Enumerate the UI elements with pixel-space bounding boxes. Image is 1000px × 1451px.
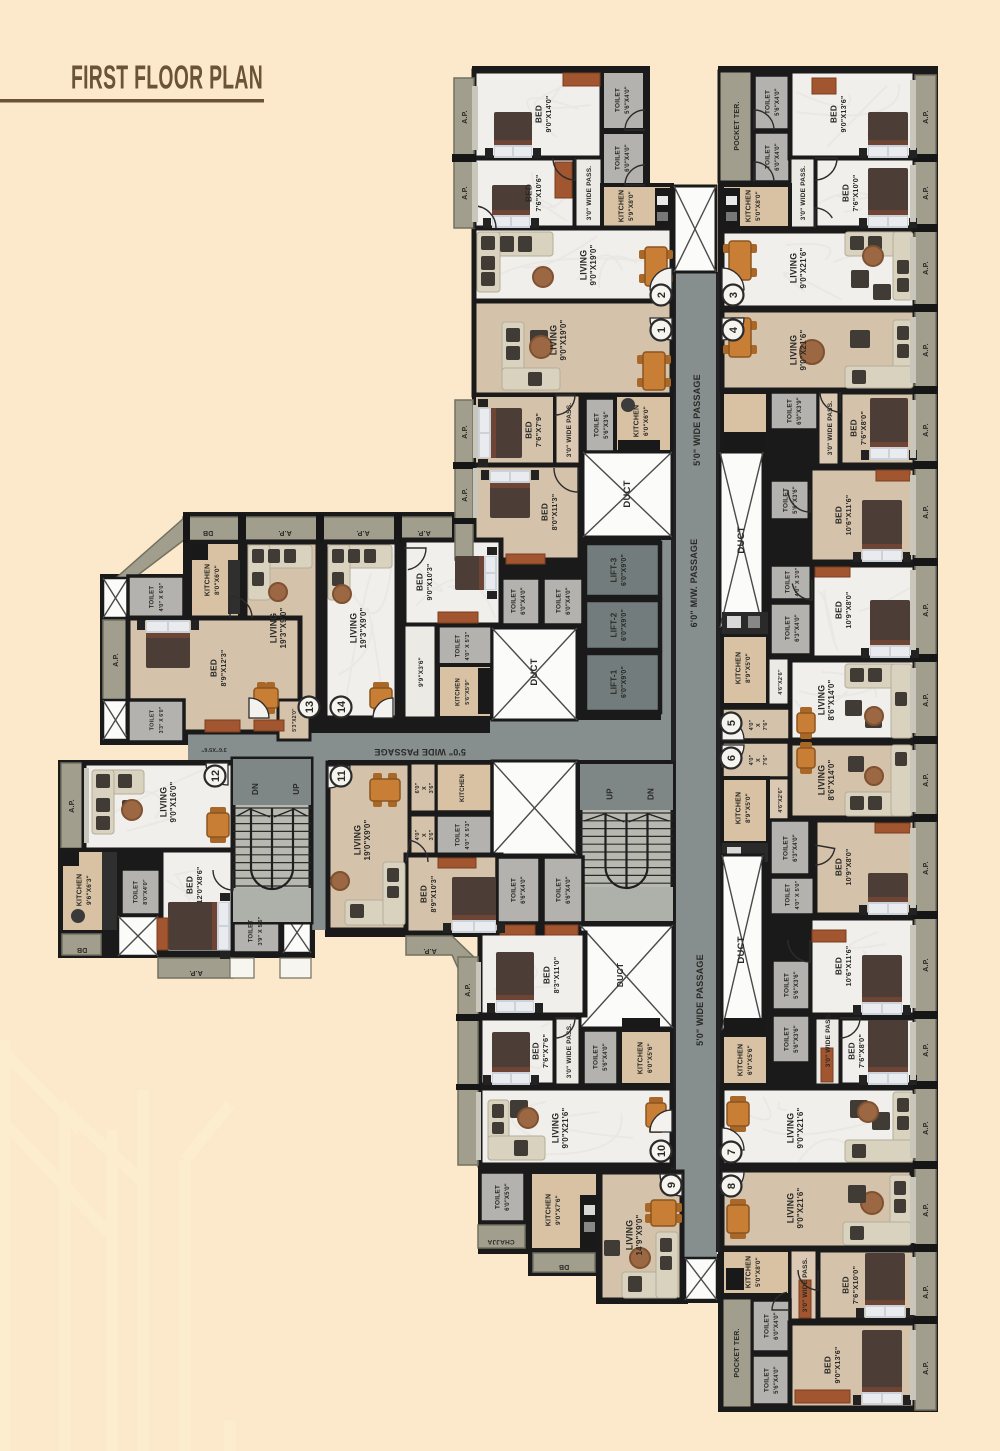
- svg-text:3'0" WIDE PASS.: 3'0" WIDE PASS.: [566, 1024, 573, 1078]
- svg-text:5'6"X4'0": 5'6"X4'0": [625, 86, 631, 114]
- svg-text:TOILET: TOILET: [592, 1045, 599, 1069]
- svg-text:TOILET: TOILET: [149, 586, 155, 609]
- svg-text:FIRST FLOOR PLAN: FIRST FLOOR PLAN: [71, 59, 263, 96]
- svg-text:POCKET TER.: POCKET TER.: [734, 101, 741, 150]
- svg-text:11: 11: [336, 770, 348, 782]
- svg-text:A.P.: A.P.: [356, 529, 370, 536]
- svg-text:UP: UP: [292, 783, 301, 795]
- svg-text:10'9"X8'0": 10'9"X8'0": [844, 848, 853, 885]
- svg-text:A.P.: A.P.: [923, 423, 930, 437]
- svg-text:BED: BED: [415, 573, 424, 591]
- svg-text:LIVING: LIVING: [268, 613, 278, 644]
- svg-text:5'6"X4'0": 5'6"X4'0": [603, 1043, 609, 1071]
- svg-text:6'0": 6'0": [415, 782, 421, 793]
- svg-text:DUCT: DUCT: [529, 658, 540, 685]
- svg-text:LIVING: LIVING: [785, 1113, 795, 1144]
- svg-text:BED: BED: [841, 1276, 850, 1294]
- svg-text:A.P.: A.P.: [923, 1121, 930, 1135]
- svg-text:7'6"X7'6": 7'6"X7'6": [541, 1034, 550, 1068]
- svg-text:BED: BED: [834, 601, 843, 619]
- svg-text:7'6"X7'9": 7'6"X7'9": [534, 413, 543, 447]
- svg-text:6'0"X4'0": 6'0"X4'0": [774, 1312, 780, 1340]
- svg-text:X: X: [756, 758, 762, 762]
- svg-text:TOILET: TOILET: [149, 709, 155, 730]
- svg-text:8'0"X4'0": 8'0"X4'0": [143, 879, 149, 905]
- svg-text:8'6"X14'0": 8'6"X14'0": [827, 680, 836, 721]
- svg-text:3'9" X 5'6": 3'9" X 5'6": [258, 916, 264, 945]
- svg-text:6'6"X4'0": 6'6"X4'0": [566, 876, 572, 904]
- svg-text:7'6": 7'6": [763, 754, 769, 765]
- svg-text:6'0"X4'0": 6'0"X4'0": [775, 143, 781, 171]
- svg-text:9: 9: [666, 1182, 678, 1188]
- svg-text:6'6"X4'0": 6'6"X4'0": [521, 876, 527, 904]
- svg-text:BED: BED: [834, 957, 843, 975]
- svg-text:LIVING: LIVING: [624, 1220, 634, 1251]
- svg-text:KITCHEN: KITCHEN: [737, 1044, 744, 1077]
- svg-text:LIVING: LIVING: [785, 1193, 795, 1224]
- svg-text:LIVING: LIVING: [788, 335, 798, 366]
- svg-text:BED: BED: [841, 184, 850, 202]
- svg-text:A.P.: A.P.: [923, 186, 930, 200]
- svg-text:A.P.: A.P.: [465, 983, 472, 997]
- svg-text:3'0" WIDE PASS.: 3'0" WIDE PASS.: [827, 401, 834, 455]
- svg-text:TOILET: TOILET: [494, 1185, 501, 1209]
- svg-text:KITCHEN: KITCHEN: [76, 874, 83, 907]
- svg-text:5'6"X3'6": 5'6"X3'6": [604, 411, 610, 439]
- svg-text:6'0"X9'0": 6'0"X9'0": [621, 666, 628, 698]
- svg-text:5'0" WIDE PASSAGE: 5'0" WIDE PASSAGE: [374, 747, 466, 757]
- svg-text:7'6": 7'6": [763, 719, 769, 730]
- svg-text:BED: BED: [209, 659, 218, 677]
- svg-text:TOILET: TOILET: [593, 413, 600, 437]
- svg-text:6'0"X3'9": 6'0"X3'9": [797, 397, 803, 425]
- svg-text:BED: BED: [829, 105, 838, 123]
- svg-text:A.P.: A.P.: [189, 969, 203, 976]
- svg-text:5'6"X3'6": 5'6"X3'6": [794, 1025, 800, 1053]
- svg-text:A.P.: A.P.: [923, 693, 930, 707]
- svg-text:5'0" WIDE PASSAGE: 5'0" WIDE PASSAGE: [695, 954, 705, 1046]
- svg-text:8'0"X6'0": 8'0"X6'0": [214, 565, 221, 595]
- svg-text:TOILET: TOILET: [614, 146, 621, 170]
- svg-text:4: 4: [728, 326, 740, 333]
- svg-text:5'0" WIDE PASSAGE: 5'0" WIDE PASSAGE: [692, 374, 702, 466]
- svg-text:A.P.: A.P.: [417, 529, 431, 536]
- svg-text:TOILET: TOILET: [133, 881, 139, 904]
- svg-text:A.P.: A.P.: [923, 343, 930, 357]
- svg-text:3'3" X 6'0": 3'3" X 6'0": [159, 706, 165, 733]
- svg-text:A.P.: A.P.: [923, 505, 930, 519]
- svg-text:KITCHEN: KITCHEN: [460, 774, 466, 802]
- svg-text:LIFT-1: LIFT-1: [609, 669, 618, 694]
- svg-text:A.P.: A.P.: [923, 773, 930, 787]
- svg-text:TOILET: TOILET: [614, 88, 621, 112]
- svg-text:KITCHEN: KITCHEN: [455, 678, 461, 706]
- svg-text:19'0"X9'0": 19'0"X9'0": [363, 820, 372, 861]
- svg-text:12'0"X8'6": 12'0"X8'6": [195, 866, 204, 903]
- svg-text:4'0" X 5'0": 4'0" X 5'0": [795, 880, 801, 909]
- svg-text:3'0" WIDE PASS.: 3'0" WIDE PASS.: [800, 166, 807, 220]
- svg-text:BED: BED: [524, 421, 533, 439]
- svg-text:4'0" X 5'3": 4'0" X 5'3": [465, 820, 471, 849]
- svg-text:6'0"X4'0": 6'0"X4'0": [566, 587, 572, 615]
- svg-text:A.P.: A.P.: [923, 1361, 930, 1375]
- svg-text:8'6"X14'0": 8'6"X14'0": [827, 760, 836, 801]
- svg-text:A.P.: A.P.: [923, 603, 930, 617]
- svg-text:TOILET: TOILET: [510, 878, 517, 902]
- svg-text:6'0"X9'0": 6'0"X9'0": [621, 554, 628, 586]
- svg-text:A.P.: A.P.: [423, 947, 437, 954]
- svg-text:CHAJJA: CHAJJA: [487, 1238, 514, 1245]
- svg-text:TOILET: TOILET: [782, 836, 789, 860]
- svg-text:10'9"X8'0": 10'9"X8'0": [844, 591, 853, 628]
- svg-text:9'0"X21'6": 9'0"X21'6": [796, 1188, 805, 1229]
- svg-text:TOILET: TOILET: [248, 920, 254, 943]
- svg-text:4'0" X 5'3": 4'0" X 5'3": [465, 631, 471, 660]
- svg-text:DN: DN: [647, 788, 656, 800]
- svg-text:3'6": 3'6": [429, 829, 435, 840]
- svg-text:DUCT: DUCT: [615, 962, 625, 987]
- svg-text:BED: BED: [534, 105, 543, 123]
- svg-text:9'0"X21'6": 9'0"X21'6": [796, 1108, 805, 1149]
- svg-text:8'9"X12'3": 8'9"X12'3": [219, 649, 228, 686]
- svg-text:6'3"X4'0": 6'3"X4'0": [795, 614, 801, 642]
- svg-text:9'0"X7'6": 9'0"X7'6": [555, 1195, 562, 1225]
- svg-text:9'0"X10'3": 9'0"X10'3": [425, 563, 434, 600]
- svg-text:4'0" X 3'0": 4'0" X 3'0": [795, 567, 801, 596]
- svg-text:12: 12: [210, 770, 222, 782]
- svg-text:TOILET: TOILET: [785, 571, 791, 594]
- svg-text:5'6"X4'0": 5'6"X4'0": [775, 88, 781, 116]
- svg-text:4'6"X2'6": 4'6"X2'6": [778, 669, 784, 695]
- svg-text:BED: BED: [524, 184, 533, 202]
- svg-text:LIVING: LIVING: [548, 325, 558, 356]
- svg-text:LIVING: LIVING: [550, 1113, 560, 1144]
- svg-text:KITCHEN: KITCHEN: [637, 1042, 644, 1075]
- svg-text:A.P.: A.P.: [923, 110, 930, 124]
- svg-text:TOILET: TOILET: [786, 399, 793, 423]
- svg-text:A.P.: A.P.: [923, 261, 930, 275]
- svg-text:BED: BED: [823, 1356, 832, 1374]
- svg-text:7'6"X8'0": 7'6"X8'0": [859, 411, 868, 445]
- svg-text:3'6": 3'6": [429, 782, 435, 793]
- svg-text:A.P.: A.P.: [462, 488, 469, 502]
- svg-text:4'0": 4'0": [749, 719, 755, 730]
- svg-text:5'6"X4'0": 5'6"X4'0": [774, 1366, 780, 1394]
- svg-text:KITCHEN: KITCHEN: [618, 190, 625, 223]
- svg-text:TOILET: TOILET: [784, 616, 791, 640]
- svg-text:6'0"X5'6": 6'0"X5'6": [647, 1043, 654, 1073]
- svg-text:6'3"X4'0": 6'3"X4'0": [793, 834, 799, 862]
- svg-text:19'3"X9'0": 19'3"X9'0": [359, 608, 368, 649]
- svg-text:DN: DN: [251, 783, 260, 795]
- svg-text:9'0"X21'6": 9'0"X21'6": [561, 1108, 570, 1149]
- svg-text:TOILET: TOILET: [763, 1314, 770, 1338]
- svg-text:9'0"X13'6": 9'0"X13'6": [833, 1346, 842, 1383]
- svg-text:6'0"X4'0": 6'0"X4'0": [521, 587, 527, 615]
- svg-text:3'0" WIDE PASS.: 3'0" WIDE PASS.: [586, 166, 593, 220]
- svg-text:DUCT: DUCT: [736, 526, 747, 553]
- svg-text:TOILET: TOILET: [555, 878, 562, 902]
- svg-text:BED: BED: [531, 1042, 540, 1060]
- svg-text:3'0" WIDE PASS.: 3'0" WIDE PASS.: [802, 1258, 809, 1312]
- svg-text:8'3"X11'0": 8'3"X11'0": [552, 957, 561, 994]
- svg-text:TOILET: TOILET: [764, 90, 771, 114]
- svg-text:DUCT: DUCT: [736, 936, 747, 963]
- svg-text:9'0"X16'0": 9'0"X16'0": [169, 782, 178, 823]
- svg-text:BED: BED: [540, 503, 549, 521]
- svg-text:4'0" X 6'0": 4'0" X 6'0": [159, 582, 165, 611]
- svg-text:X: X: [422, 833, 428, 837]
- svg-text:POCKET TER.: POCKET TER.: [734, 1328, 741, 1377]
- svg-text:A.P.: A.P.: [462, 425, 469, 439]
- svg-text:LIVING: LIVING: [578, 250, 588, 281]
- svg-text:A.P.: A.P.: [69, 799, 76, 813]
- svg-text:BED: BED: [834, 506, 843, 524]
- svg-text:4'6"X2'6": 4'6"X2'6": [778, 787, 784, 813]
- svg-text:7'6"X10'6": 7'6"X10'6": [534, 174, 543, 211]
- svg-text:BED: BED: [542, 966, 551, 984]
- svg-text:LIFT-2: LIFT-2: [609, 612, 618, 637]
- svg-text:TOILET: TOILET: [510, 589, 517, 613]
- svg-text:A.P.: A.P.: [923, 958, 930, 972]
- svg-text:TOILET: TOILET: [785, 884, 791, 907]
- svg-text:3'0" WIDE PASS.: 3'0" WIDE PASS.: [825, 1013, 832, 1067]
- svg-text:7: 7: [726, 1149, 738, 1155]
- svg-text:6'0"X9'0": 6'0"X9'0": [621, 609, 628, 641]
- svg-text:DB: DB: [203, 529, 214, 536]
- svg-text:6: 6: [726, 755, 738, 761]
- svg-text:KITCHEN: KITCHEN: [735, 652, 742, 685]
- svg-text:10'6"X11'6": 10'6"X11'6": [844, 495, 853, 536]
- svg-text:10: 10: [656, 1145, 668, 1157]
- svg-text:A.P.: A.P.: [462, 186, 469, 200]
- svg-text:7'6"X8'0": 7'6"X8'0": [857, 1034, 866, 1068]
- svg-text:DUCT: DUCT: [622, 480, 633, 507]
- svg-text:A.P.: A.P.: [923, 1285, 930, 1299]
- svg-text:A.P.: A.P.: [923, 861, 930, 875]
- svg-text:6'0"X6'0": 6'0"X6'0": [643, 406, 650, 436]
- svg-text:3'0" WIDE PASS.: 3'0" WIDE PASS.: [566, 403, 573, 457]
- svg-text:LIFT-3: LIFT-3: [609, 557, 618, 582]
- svg-text:KITCHEN: KITCHEN: [633, 405, 640, 438]
- svg-text:5'6"X3'6": 5'6"X3'6": [793, 486, 799, 514]
- svg-text:5'9"X8'0": 5'9"X8'0": [628, 191, 635, 221]
- svg-text:5'0"X8'0": 5'0"X8'0": [755, 1257, 762, 1287]
- svg-text:5'6"X3'6": 5'6"X3'6": [794, 971, 800, 999]
- svg-text:TOILET: TOILET: [782, 488, 789, 512]
- svg-text:10'6"X11'6": 10'6"X11'6": [844, 946, 853, 987]
- svg-text:A.P.: A.P.: [113, 653, 120, 667]
- svg-text:8'0"X11'3": 8'0"X11'3": [550, 494, 559, 531]
- svg-text:TOILET: TOILET: [764, 145, 771, 169]
- svg-text:A.P.: A.P.: [923, 1043, 930, 1057]
- svg-text:BED: BED: [185, 876, 194, 894]
- svg-text:LIVING: LIVING: [158, 787, 168, 818]
- svg-text:6'0" M/W. PASSAGE: 6'0" M/W. PASSAGE: [689, 539, 699, 628]
- svg-text:9'6"X6'3": 9'6"X6'3": [86, 875, 93, 905]
- svg-text:7'6"X10'0": 7'6"X10'0": [851, 174, 860, 211]
- svg-text:19'3"X9'0": 19'3"X9'0": [279, 608, 288, 649]
- svg-text:8'9"X10'3": 8'9"X10'3": [429, 875, 438, 912]
- svg-text:X: X: [756, 723, 762, 727]
- svg-text:9'0"X19'0": 9'0"X19'0": [589, 245, 598, 286]
- svg-text:LIVING: LIVING: [816, 685, 826, 716]
- svg-text:6'0"X4'0": 6'0"X4'0": [625, 144, 631, 172]
- svg-text:BED: BED: [847, 1042, 856, 1060]
- svg-text:KITCHEN: KITCHEN: [545, 1194, 552, 1227]
- svg-text:LIVING: LIVING: [352, 825, 362, 856]
- svg-text:3: 3: [728, 292, 740, 298]
- svg-text:LIVING: LIVING: [816, 765, 826, 796]
- svg-text:TOILET: TOILET: [455, 824, 461, 847]
- svg-text:BED: BED: [834, 858, 843, 876]
- svg-text:4'0": 4'0": [415, 829, 421, 840]
- svg-text:LIVING: LIVING: [348, 613, 358, 644]
- svg-text:9'9"X3'6": 9'9"X3'6": [418, 657, 425, 687]
- svg-text:DB: DB: [77, 946, 88, 953]
- svg-text:9'0"X19'0": 9'0"X19'0": [559, 320, 568, 361]
- svg-text:5'6"X5'9": 5'6"X5'9": [465, 679, 471, 705]
- svg-text:5'3"X2'0": 5'3"X2'0": [292, 708, 298, 732]
- svg-text:A.P.: A.P.: [278, 529, 292, 536]
- svg-text:KITCHEN: KITCHEN: [204, 564, 211, 597]
- svg-text:BED: BED: [419, 885, 428, 903]
- svg-text:9'0"X13'6": 9'0"X13'6": [839, 95, 848, 132]
- svg-text:TOILET: TOILET: [763, 1368, 770, 1392]
- svg-text:9'0"X21'6": 9'0"X21'6": [799, 248, 808, 289]
- svg-text:5'0"X8'0": 5'0"X8'0": [755, 191, 762, 221]
- svg-text:KITCHEN: KITCHEN: [735, 792, 742, 825]
- svg-text:8'9"X5'0": 8'9"X5'0": [745, 653, 752, 683]
- svg-text:TOILET: TOILET: [555, 589, 562, 613]
- svg-text:5: 5: [726, 720, 738, 726]
- svg-text:6'0"X5'0": 6'0"X5'0": [505, 1183, 511, 1211]
- svg-text:2: 2: [656, 292, 668, 298]
- svg-text:7'6"X10'0": 7'6"X10'0": [851, 1265, 860, 1304]
- svg-text:14: 14: [336, 700, 348, 713]
- svg-text:13: 13: [304, 701, 316, 713]
- svg-text:6'0"X5'6": 6'0"X5'6": [747, 1045, 754, 1075]
- svg-text:KITCHEN: KITCHEN: [745, 190, 752, 223]
- svg-text:KITCHEN: KITCHEN: [745, 1256, 752, 1289]
- svg-text:X: X: [422, 786, 428, 790]
- svg-text:14'9"X9'0": 14'9"X9'0": [635, 1215, 644, 1256]
- svg-text:TOILET: TOILET: [455, 635, 461, 658]
- svg-text:9'0"X14'0": 9'0"X14'0": [544, 95, 553, 132]
- svg-text:UP: UP: [606, 788, 615, 800]
- svg-text:LIVING: LIVING: [788, 253, 798, 284]
- svg-text:A.P.: A.P.: [462, 110, 469, 124]
- svg-text:8'9"X5'0": 8'9"X5'0": [745, 793, 752, 823]
- svg-text:1: 1: [656, 327, 668, 333]
- svg-text:4'0": 4'0": [749, 754, 755, 765]
- svg-text:BED: BED: [849, 419, 858, 437]
- svg-text:TOILET: TOILET: [783, 1027, 790, 1051]
- svg-text:TOILET: TOILET: [783, 973, 790, 997]
- svg-text:3'6"X5'6": 3'6"X5'6": [201, 746, 227, 752]
- svg-text:8: 8: [726, 1183, 738, 1189]
- svg-text:DB: DB: [559, 1263, 570, 1270]
- svg-text:A.P.: A.P.: [923, 1203, 930, 1217]
- svg-text:9'0"X21'6": 9'0"X21'6": [799, 330, 808, 371]
